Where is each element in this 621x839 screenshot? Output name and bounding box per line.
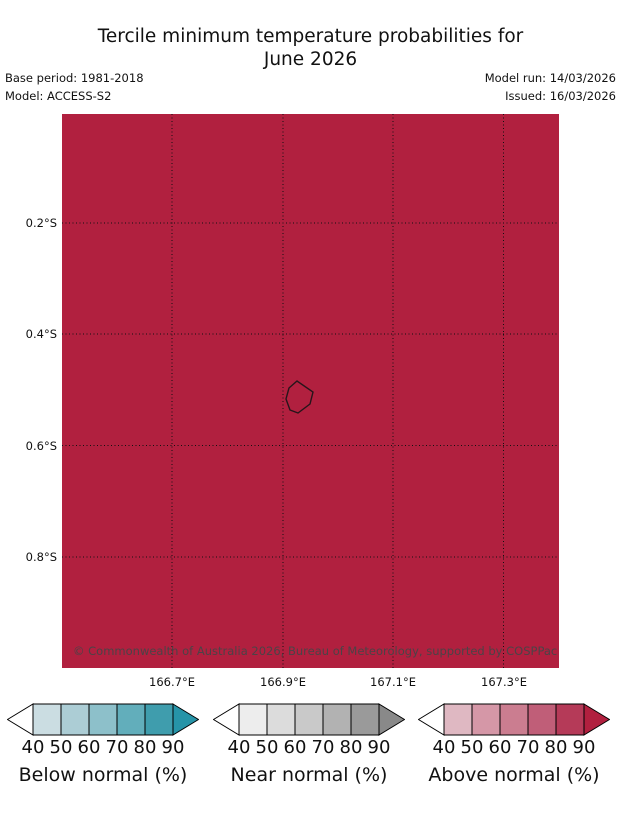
tick-50: 50 <box>50 738 73 758</box>
left-arrow <box>8 704 34 735</box>
colorbar-ticks: 40 50 60 70 80 90 <box>418 738 610 760</box>
right-arrow <box>584 704 610 735</box>
x-tick-167.3E: 167.3°E <box>481 674 527 690</box>
segment-40-50 <box>239 704 267 735</box>
segment-70-80 <box>323 704 351 735</box>
tick-60: 60 <box>284 738 307 758</box>
title-line-1: Tercile minimum temperature probabilitie… <box>0 25 621 48</box>
tick-70: 70 <box>517 738 540 758</box>
meta-right: Model run: 14/03/2026 Issued: 16/03/2026 <box>485 69 616 105</box>
colorbar-caption: Above normal (%) <box>398 763 621 787</box>
colorbar-above-normal: 40 50 60 70 80 90 Above normal (%) <box>418 703 610 791</box>
colorbar-below-normal-svg <box>7 703 199 736</box>
tick-90: 90 <box>162 738 185 758</box>
segment-50-60 <box>472 704 500 735</box>
meta-left: Base period: 1981-2018 Model: ACCESS-S2 <box>5 69 144 105</box>
tick-70: 70 <box>106 738 129 758</box>
colorbar-ticks: 40 50 60 70 80 90 <box>213 738 405 760</box>
colorbar-near-normal: 40 50 60 70 80 90 Near normal (%) <box>213 703 405 791</box>
colorbar-near-normal-svg <box>213 703 405 736</box>
left-arrow <box>214 704 240 735</box>
colorbar-below-normal: 40 50 60 70 80 90 Below normal (%) <box>7 703 199 791</box>
copyright-text: © Commonwealth of Australia 2026, Bureau… <box>73 644 557 658</box>
page-title: Tercile minimum temperature probabilitie… <box>0 25 621 71</box>
y-tick-0.4S: 0.4°S <box>0 326 57 342</box>
tick-50: 50 <box>256 738 279 758</box>
segment-40-50 <box>444 704 472 735</box>
segment-80-90 <box>351 704 379 735</box>
tick-80: 80 <box>340 738 363 758</box>
colorbar-caption: Near normal (%) <box>193 763 425 787</box>
colorbar-caption: Below normal (%) <box>0 763 219 787</box>
right-arrow <box>173 704 199 735</box>
issued-text: Issued: 16/03/2026 <box>485 87 616 105</box>
colorbar-ticks: 40 50 60 70 80 90 <box>7 738 199 760</box>
segment-40-50 <box>33 704 61 735</box>
x-tick-166.7E: 166.7°E <box>149 674 195 690</box>
colorbar-above-normal-svg <box>418 703 610 736</box>
tick-40: 40 <box>433 738 456 758</box>
tick-80: 80 <box>545 738 568 758</box>
segment-50-60 <box>267 704 295 735</box>
map-canvas: © Commonwealth of Australia 2026, Bureau… <box>62 114 559 668</box>
tick-60: 60 <box>489 738 512 758</box>
title-line-2: June 2026 <box>0 48 621 71</box>
x-tick-166.9E: 166.9°E <box>260 674 306 690</box>
tick-80: 80 <box>134 738 157 758</box>
tick-40: 40 <box>22 738 45 758</box>
tick-50: 50 <box>461 738 484 758</box>
segment-60-70 <box>295 704 323 735</box>
map-area: © Commonwealth of Australia 2026, Bureau… <box>62 114 559 668</box>
tick-60: 60 <box>78 738 101 758</box>
y-tick-0.8S: 0.8°S <box>0 549 57 565</box>
model-run-text: Model run: 14/03/2026 <box>485 69 616 87</box>
segment-80-90 <box>556 704 584 735</box>
left-arrow <box>419 704 445 735</box>
x-tick-167.1E: 167.1°E <box>370 674 416 690</box>
tick-90: 90 <box>368 738 391 758</box>
segment-60-70 <box>500 704 528 735</box>
y-tick-0.6S: 0.6°S <box>0 438 57 454</box>
tick-90: 90 <box>573 738 596 758</box>
segment-80-90 <box>145 704 173 735</box>
right-arrow <box>379 704 405 735</box>
segment-50-60 <box>61 704 89 735</box>
base-period-text: Base period: 1981-2018 <box>5 69 144 87</box>
segment-60-70 <box>89 704 117 735</box>
segment-70-80 <box>528 704 556 735</box>
tick-40: 40 <box>228 738 251 758</box>
figure: Tercile minimum temperature probabilitie… <box>0 0 621 839</box>
segment-70-80 <box>117 704 145 735</box>
tick-70: 70 <box>312 738 335 758</box>
model-text: Model: ACCESS-S2 <box>5 87 144 105</box>
y-tick-0.2S: 0.2°S <box>0 215 57 231</box>
